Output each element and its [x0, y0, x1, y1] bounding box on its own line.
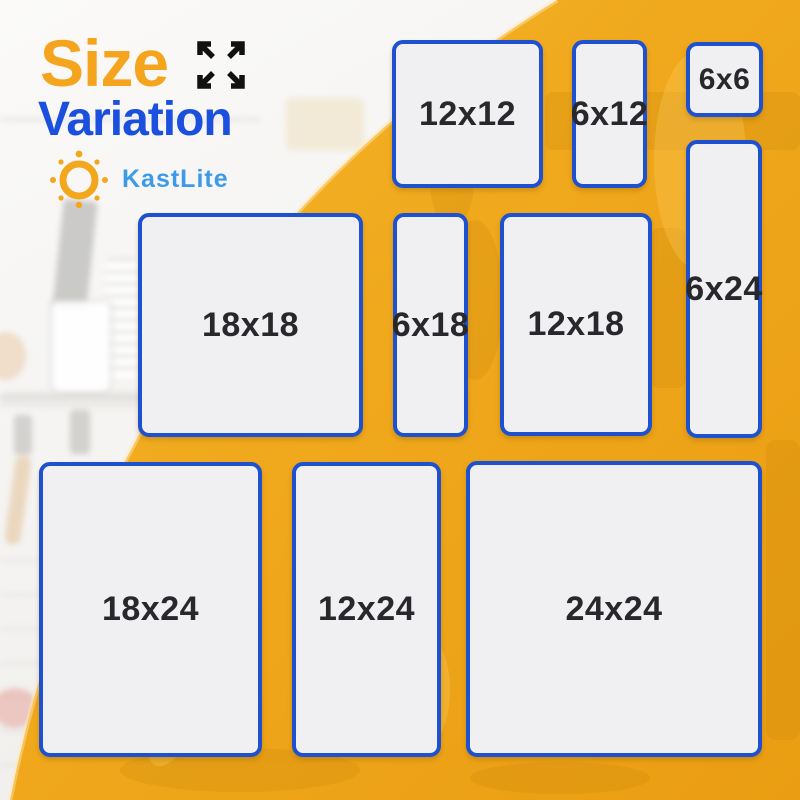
size-label: 24x24 [565, 590, 662, 629]
size-panel-12x18: 12x18 [500, 213, 652, 436]
title-size: Size [40, 30, 168, 96]
size-label: 12x24 [318, 590, 415, 629]
size-label: 6x12 [571, 95, 649, 134]
brand-logo: KastLite [50, 150, 229, 208]
product-infographic: Size Variation KastLite 12x12 [0, 0, 800, 800]
size-panel-6x6: 6x6 [686, 42, 763, 117]
brand-name-text: KastLite [122, 165, 229, 194]
size-panel-6x24: 6x24 [686, 140, 762, 438]
size-label: 18x24 [102, 590, 199, 629]
size-panel-6x12: 6x12 [572, 40, 647, 188]
size-panel-18x24: 18x24 [39, 462, 262, 757]
size-panel-6x18: 6x18 [393, 213, 468, 437]
size-label: 12x18 [527, 305, 624, 344]
size-panel-24x24: 24x24 [466, 461, 762, 757]
expand-arrows-icon [192, 36, 250, 94]
size-label: 6x18 [392, 306, 470, 345]
sun-logo-icon [50, 150, 108, 208]
size-label: 6x6 [699, 63, 751, 97]
size-label: 18x18 [202, 306, 299, 345]
size-label: 12x12 [419, 95, 516, 134]
size-label: 6x24 [685, 270, 763, 309]
size-panel-12x24: 12x24 [292, 462, 441, 757]
size-panel-18x18: 18x18 [138, 213, 363, 437]
title-variation: Variation [38, 96, 232, 144]
size-panel-12x12: 12x12 [392, 40, 543, 188]
